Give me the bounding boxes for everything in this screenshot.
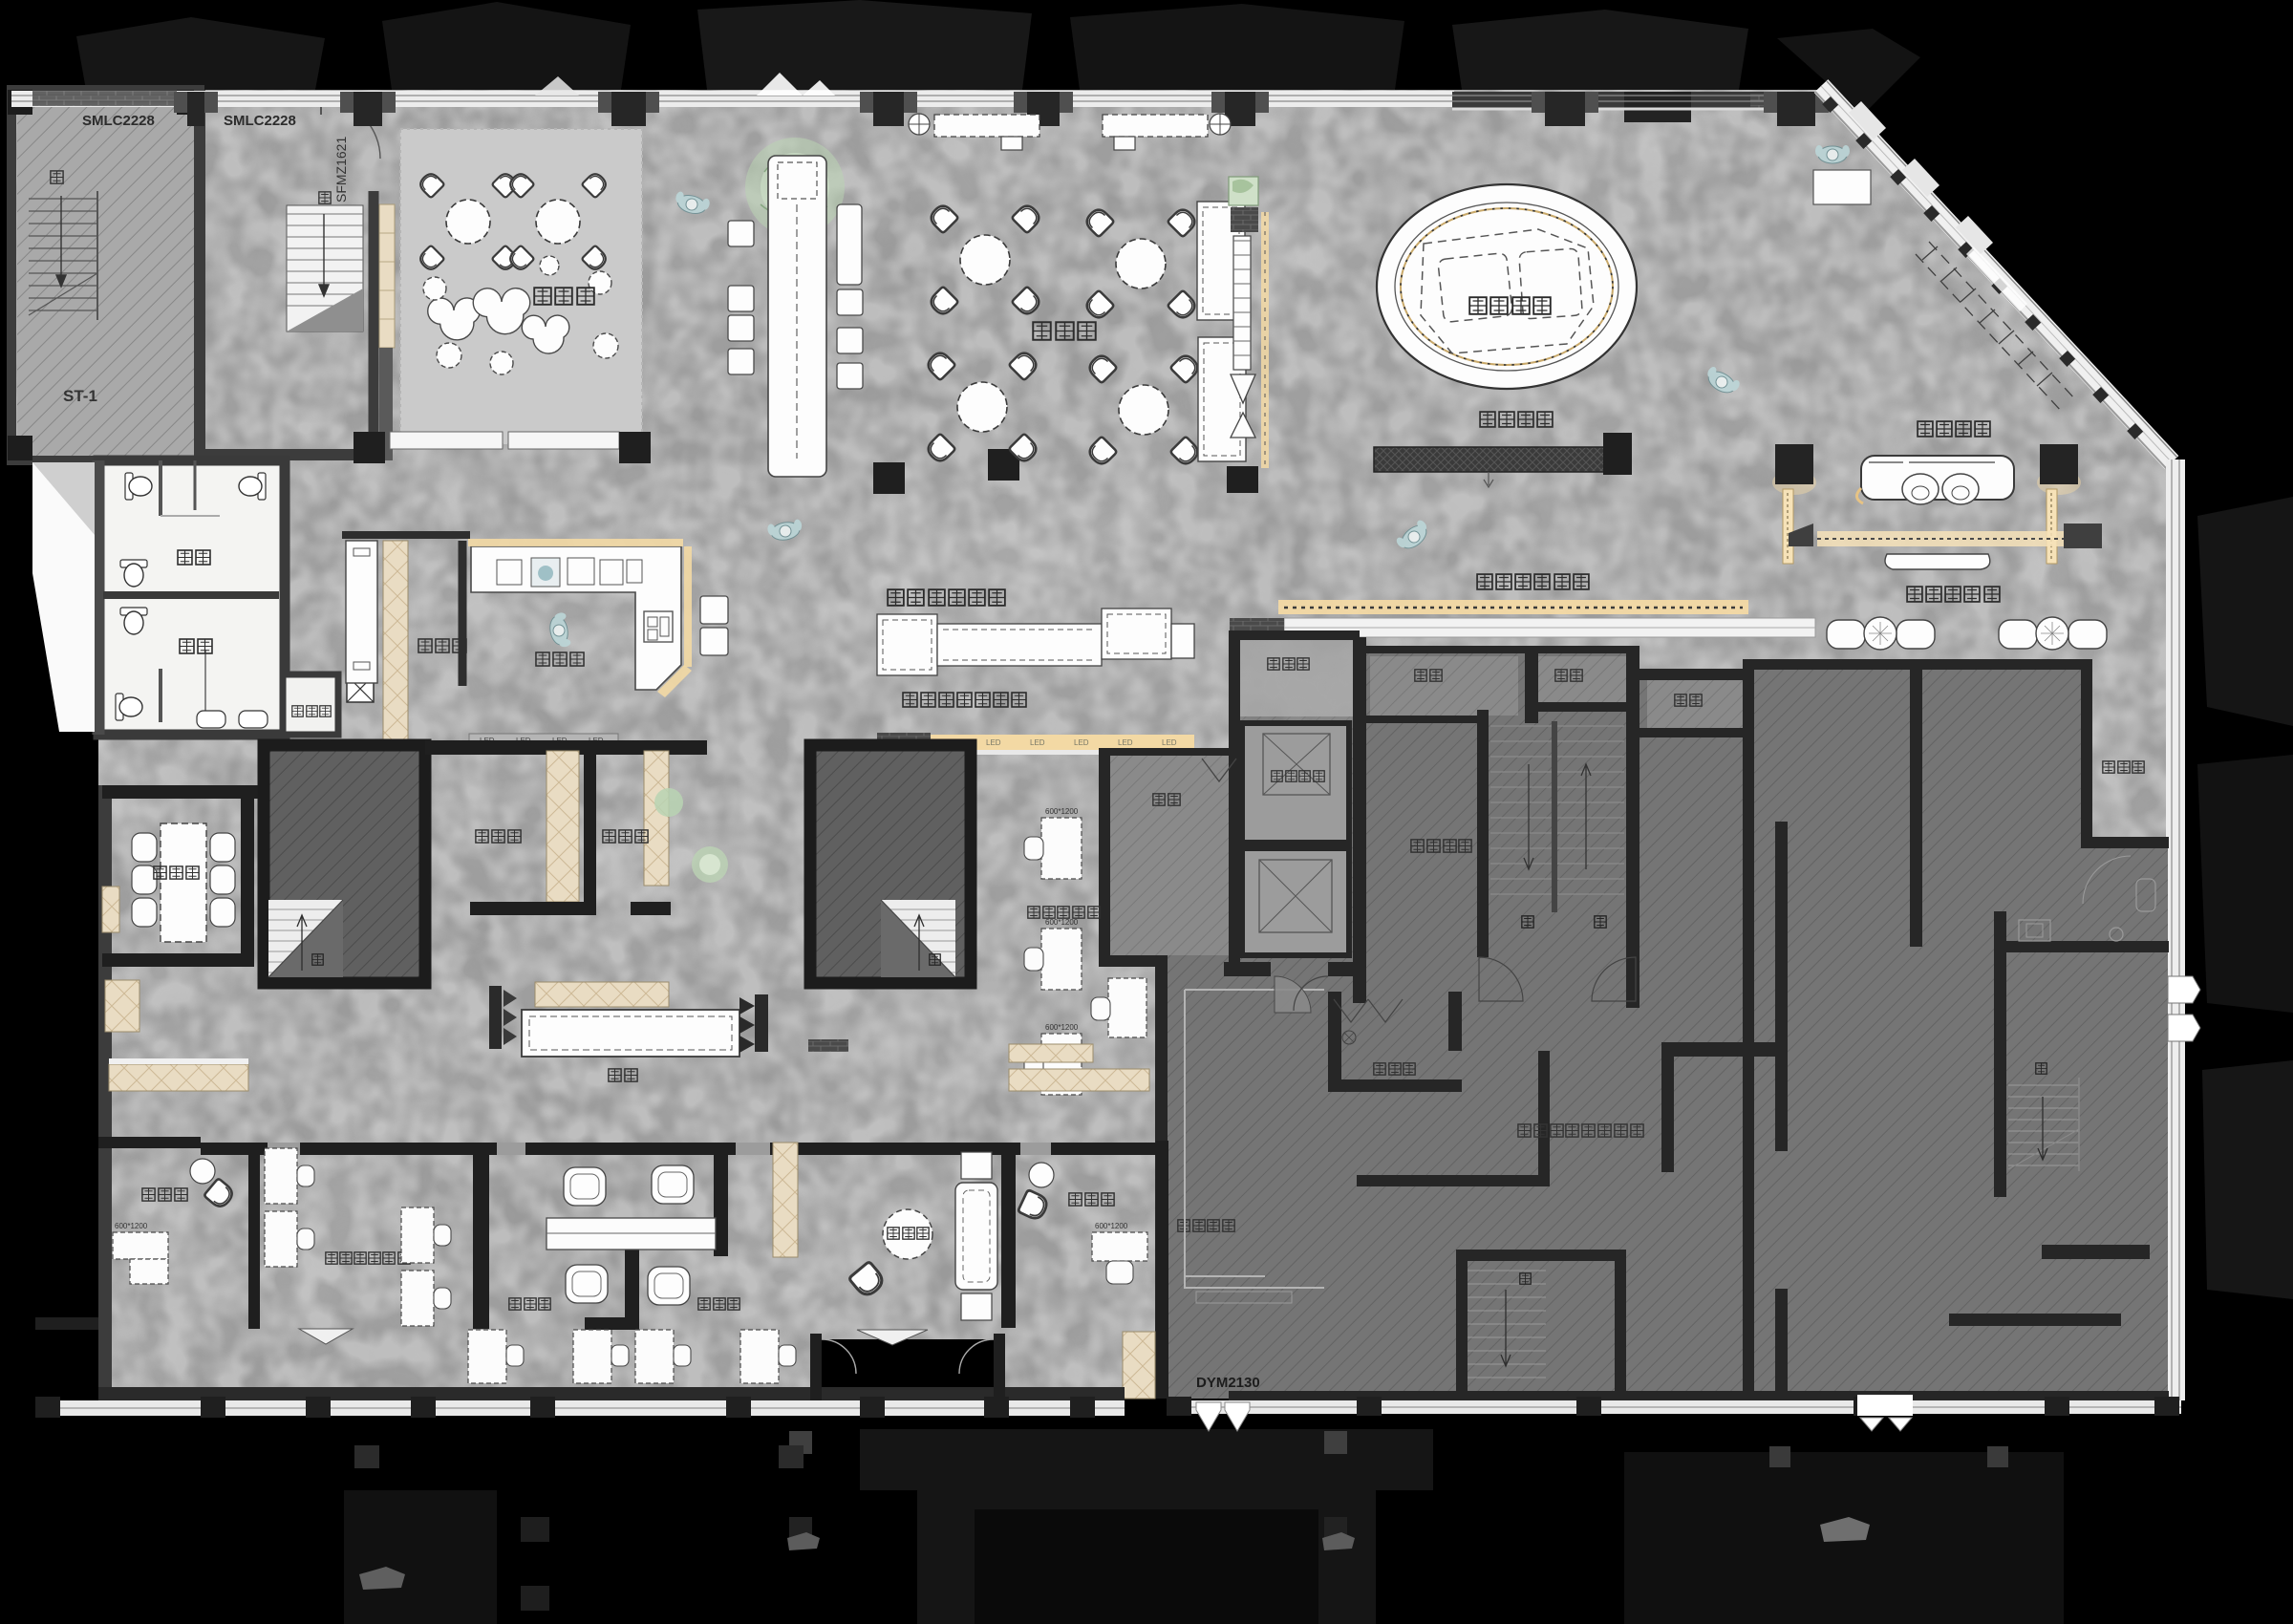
svg-text:LED: LED (1118, 738, 1133, 747)
svg-text:600*1200: 600*1200 (115, 1222, 148, 1230)
svg-text:600*1200: 600*1200 (1095, 1222, 1128, 1230)
svg-text:LED: LED (1030, 738, 1045, 747)
svg-text:LED: LED (1162, 738, 1177, 747)
svg-text:SMLC2228: SMLC2228 (224, 113, 296, 129)
svg-text:SFMZ1621: SFMZ1621 (333, 137, 349, 203)
svg-text:600*1200: 600*1200 (1045, 1023, 1079, 1032)
svg-text:LED: LED (1074, 738, 1089, 747)
svg-text:ST-1: ST-1 (63, 387, 97, 405)
svg-text:LED: LED (986, 738, 1001, 747)
svg-text:SMLC2228: SMLC2228 (82, 113, 155, 129)
svg-text:600*1200: 600*1200 (1045, 807, 1079, 816)
svg-text:600*1200: 600*1200 (1045, 918, 1079, 927)
svg-text:DYM2130: DYM2130 (1196, 1375, 1260, 1391)
